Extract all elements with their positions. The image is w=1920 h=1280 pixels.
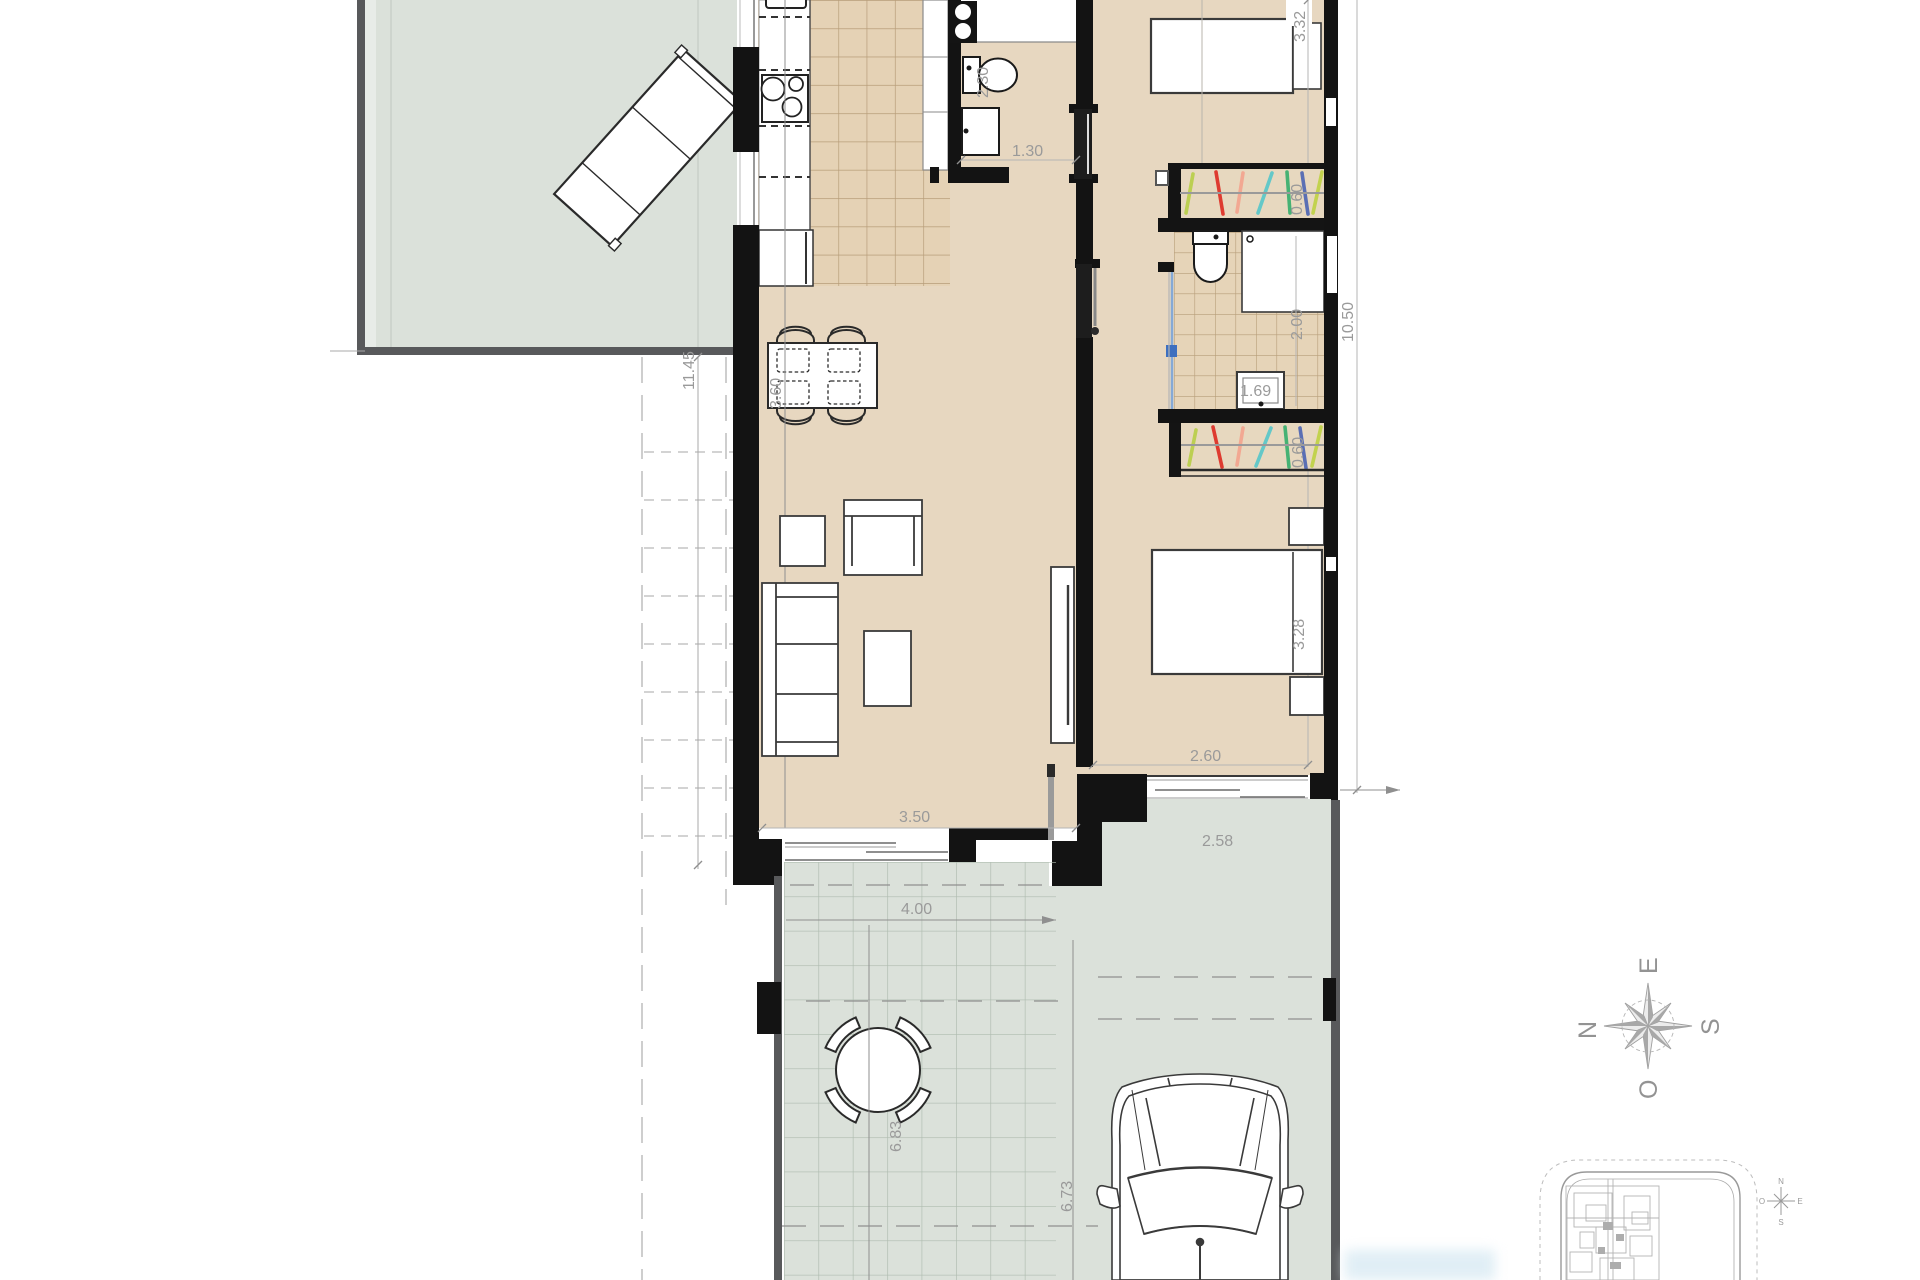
svg-text:0.60: 0.60 (1289, 184, 1306, 215)
svg-text:O: O (1759, 1197, 1765, 1206)
svg-text:3.32: 3.32 (1292, 11, 1309, 42)
svg-text:11.45: 11.45 (681, 351, 698, 390)
svg-text:N: N (1574, 1021, 1602, 1039)
svg-text:1.69: 1.69 (1240, 383, 1271, 400)
svg-text:6.83: 6.83 (888, 1121, 905, 1152)
svg-text:N: N (1778, 1177, 1784, 1186)
svg-text:O: O (1635, 1080, 1663, 1099)
svg-text:S: S (1778, 1218, 1783, 1227)
svg-text:S: S (1697, 1018, 1725, 1035)
svg-text:3.28: 3.28 (1291, 619, 1308, 650)
svg-text:2.58: 2.58 (1202, 833, 1233, 850)
svg-text:6.73: 6.73 (1059, 1181, 1076, 1212)
svg-text:0.60: 0.60 (1290, 437, 1307, 468)
svg-text:10.50: 10.50 (1340, 302, 1357, 342)
svg-text:1.30: 1.30 (1012, 143, 1043, 160)
svg-text:E: E (1635, 957, 1663, 974)
svg-text:2.60: 2.60 (1190, 748, 1221, 765)
svg-text:2.30: 2.30 (975, 67, 992, 98)
svg-text:2.00: 2.00 (1289, 309, 1306, 340)
svg-text:3.50: 3.50 (899, 809, 930, 826)
svg-text:4.00: 4.00 (901, 901, 932, 918)
svg-text:E: E (1797, 1197, 1802, 1206)
svg-text:3.60: 3.60 (768, 378, 785, 409)
